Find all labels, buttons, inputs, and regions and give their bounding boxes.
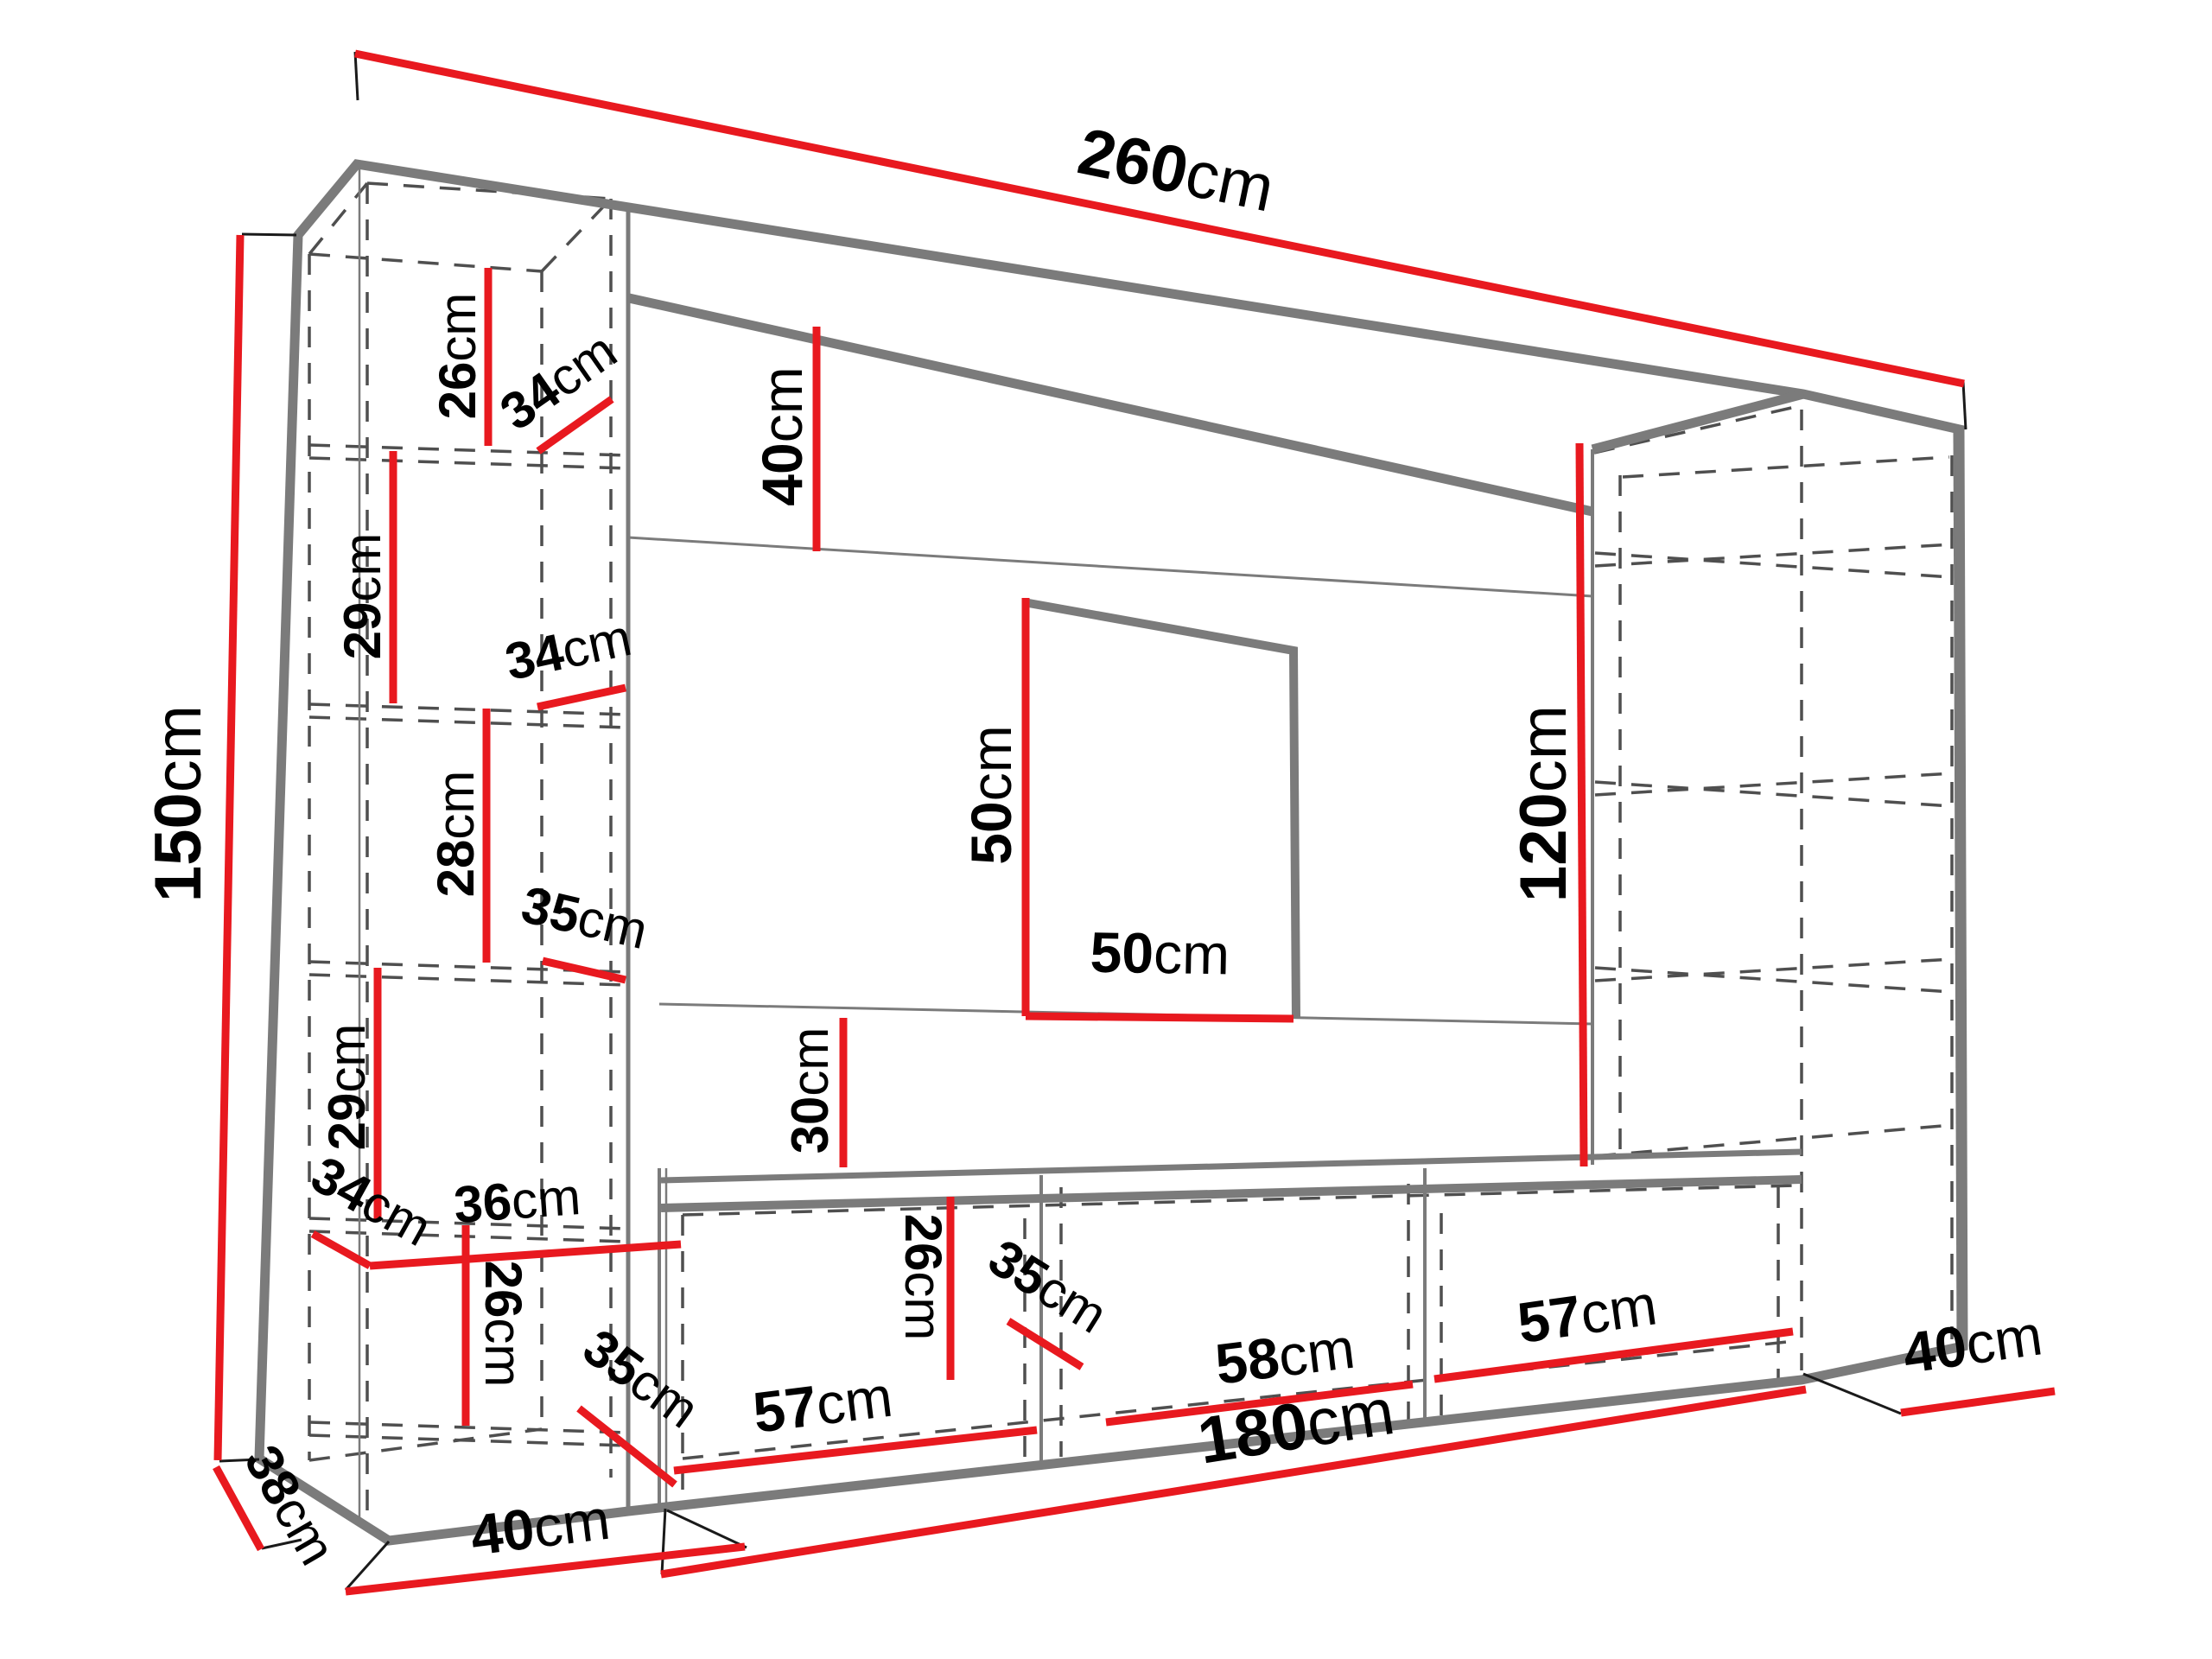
right-cabinet: [1592, 394, 1958, 1341]
dim-bench-left-line: [674, 1430, 1037, 1471]
dim-tv-height-label: 50cm: [959, 725, 1023, 864]
dim-left-depth-bottom-line: [313, 1234, 370, 1266]
dim-right-depth-line: [1901, 1391, 2055, 1413]
dim-bench-depth-label: 35cm: [979, 1228, 1117, 1344]
dim-left-bottom-gap-label: 26cm: [474, 1261, 532, 1388]
dim-left-depth-top-label: 34cm: [490, 321, 627, 442]
dim-bench-right-label: 57cm: [1514, 1272, 1661, 1355]
dim-overall-height-line: [218, 235, 240, 1460]
dim-bench-left-label: 57cm: [750, 1364, 896, 1445]
dim-panel-gap-label: 30cm: [781, 1027, 839, 1154]
dim-left-depth-shelf-label: 35cm: [517, 875, 653, 960]
furniture-dimension-diagram: 260cm 150cm 26cm 34cm 29cm 28cm 34cm 35c…: [0, 0, 2212, 1659]
dim-left-inner-width-label: 36cm: [452, 1167, 582, 1234]
dim-left-top-gap-label: 26cm: [429, 293, 486, 420]
dim-left-width-label: 40cm: [467, 1487, 613, 1567]
diagram-canvas: 260cm 150cm 26cm 34cm 29cm 28cm 34cm 35c…: [0, 0, 2212, 1659]
dim-left-shelf-3-label: 29cm: [318, 1024, 376, 1151]
right-cabinet-hidden: [1594, 406, 1952, 1370]
dim-left-shelf-2-label: 28cm: [427, 771, 485, 898]
dim-right-height-label: 120cm: [1507, 705, 1580, 902]
dim-tv-width-line: [1026, 1016, 1294, 1019]
dim-bench-height-label: 26cm: [894, 1214, 952, 1341]
dim-left-shelf-1-label: 29cm: [334, 533, 391, 660]
dimension-labels: 260cm 150cm 26cm 34cm 29cm 28cm 34cm 35c…: [142, 114, 2046, 1574]
dim-tv-width-label: 50cm: [1090, 920, 1230, 987]
dim-right-depth-label: 40cm: [1899, 1302, 2046, 1385]
dim-left-depth-mid-line: [537, 688, 626, 707]
dim-overall-height-label: 150cm: [142, 705, 215, 902]
dim-top-panel-height-label: 40cm: [750, 366, 814, 505]
dim-left-depth-mid-label: 34cm: [500, 608, 636, 691]
